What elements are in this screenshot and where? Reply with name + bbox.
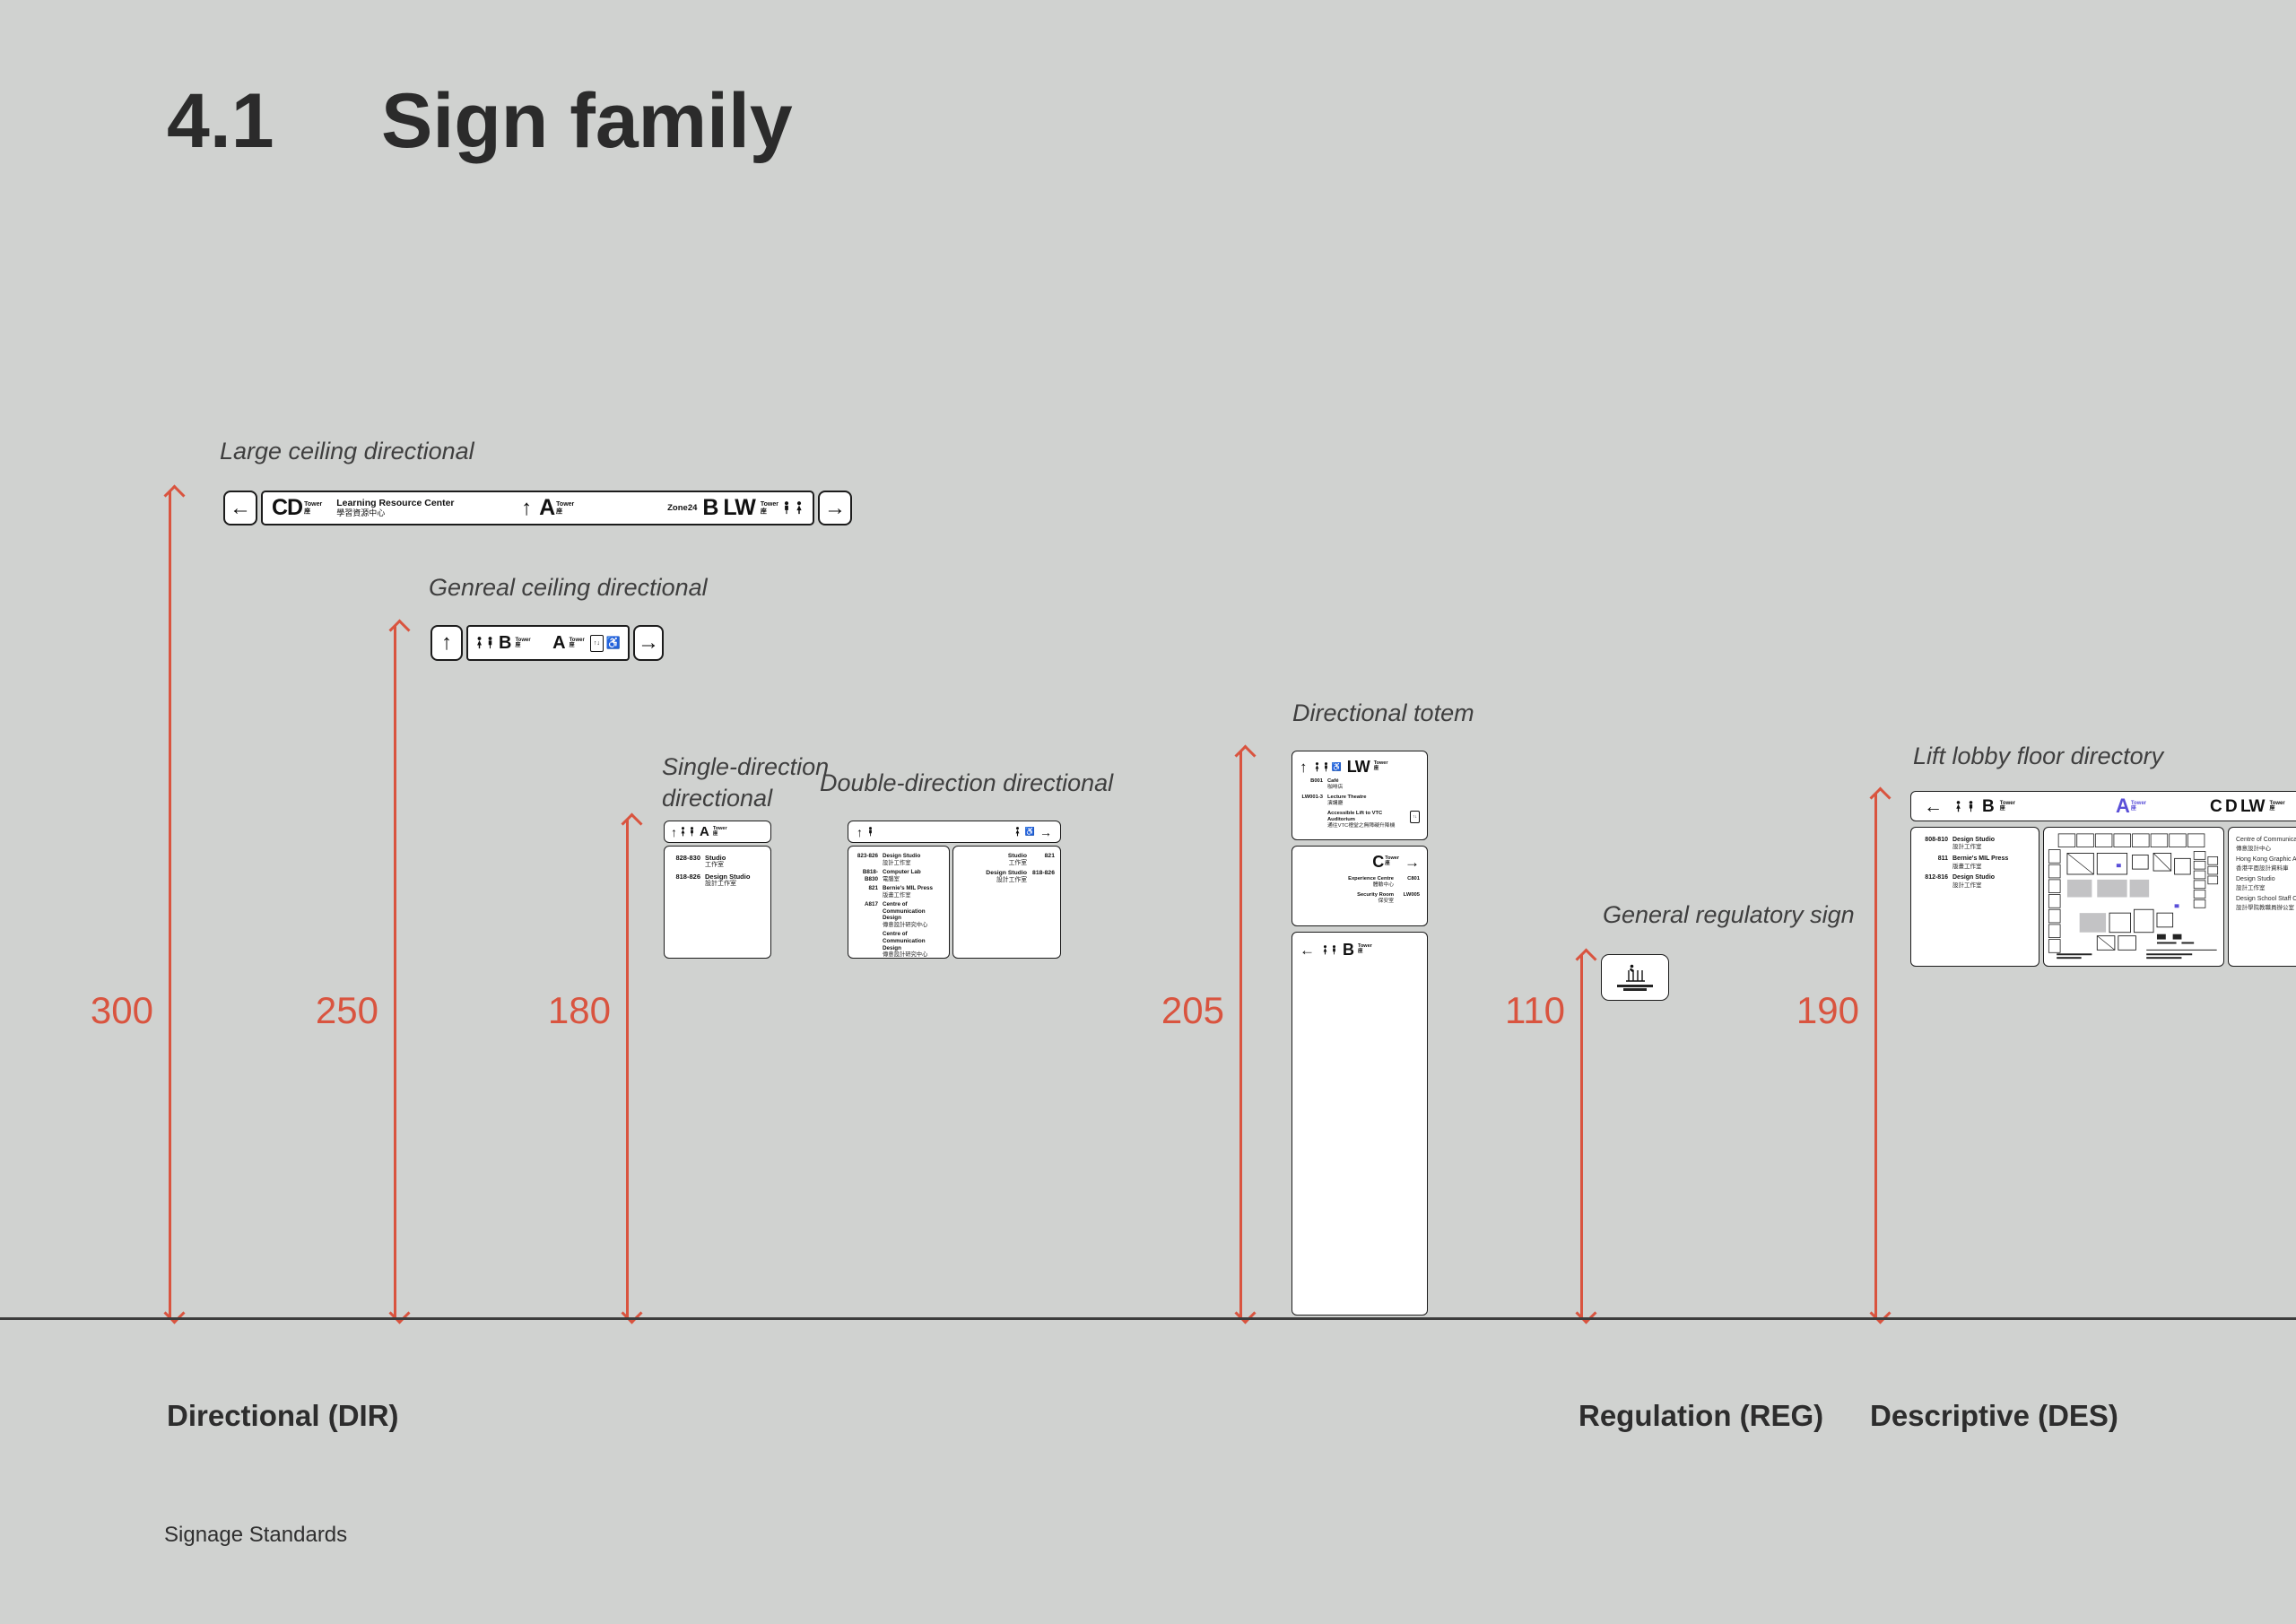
room-name: Hong Kong Graphic Archive香港平面設計資料庫: [2236, 856, 2296, 872]
label-general-regulatory-sign: General regulatory sign: [1603, 899, 1855, 931]
male-icon: [689, 827, 695, 837]
room-number: 828-830: [670, 854, 700, 869]
dimension-value-110: 110: [1457, 992, 1565, 1029]
room-number: 821: [1031, 853, 1055, 867]
room-name-zh: 傳意設計研究中心: [883, 922, 944, 929]
room-number: [853, 931, 878, 958]
male-icon: [867, 827, 874, 837]
directory-right-panel: Centre of Communication Design傳意設計中心 Hon…: [2228, 827, 2296, 967]
room-number: 818-826: [1031, 870, 1055, 884]
room-name: Design Studio設計工作室: [2236, 876, 2275, 891]
directory-header: ← B Tower 座 A Tower 座 C D LW Tower 座: [1910, 791, 2296, 821]
dimension-value-205: 205: [1117, 992, 1224, 1029]
room-number: B001: [1300, 778, 1323, 791]
room-name: Design Studio 設計工作室: [705, 873, 750, 888]
tower-caption: Tower 座: [304, 501, 322, 515]
general-ceiling-main-panel: B Tower 座 A Tower 座 ↑↓ ♿: [466, 625, 630, 661]
room-name: Security Room保安室: [1357, 892, 1394, 905]
dimension-line-205: [1239, 751, 1242, 1318]
room-name: Design Studio設計工作室: [1952, 874, 1995, 889]
double-direction-left-body: 823-826 Design Studio設計工作室 B818-B830 Com…: [848, 846, 950, 959]
room-name-zh: 傳意設計中心: [2236, 843, 2296, 852]
female-icon: [1322, 945, 1328, 955]
room-number: 811: [1918, 855, 1948, 870]
single-direction-body: 828-830 Studio 工作室 818-826 Design Studio…: [664, 846, 771, 959]
lift-icon: ↑↓: [590, 635, 604, 652]
room-name-en: Centre of Communication Design: [2236, 837, 2296, 843]
sign-row: 823-826 Design Studio設計工作室: [853, 853, 920, 866]
room-name: Lecture Theatre演講廳: [1327, 795, 1367, 807]
tower-caption: Tower 座: [515, 638, 530, 649]
room-name-zh: 版畫工作室: [1952, 864, 2008, 871]
room-name-zh: 設計工作室: [705, 881, 750, 888]
b-tower-logo: B: [1982, 798, 1994, 815]
zone-label: Zone24: [667, 503, 697, 513]
sign-row: 821 Bernie's MIL Press版畫工作室: [853, 885, 933, 899]
room-name: Centre of Communication Design傳意設計研究中心: [883, 931, 944, 958]
room-name: Bernie's MIL Press版畫工作室: [1952, 855, 2008, 870]
up-arrow-icon: ↑: [671, 826, 677, 838]
a-tower-logo: A: [700, 825, 709, 838]
room-name-en: Design Studio: [883, 853, 920, 860]
room-name-zh: 工作室: [1008, 860, 1027, 867]
room-name: Computer Lab電腦室: [883, 869, 921, 882]
dimension-line-110: [1580, 954, 1583, 1318]
male-icon: [1967, 801, 1975, 812]
ground-line: [0, 1317, 2296, 1320]
sign-row: Design Studio設計工作室 818-826: [959, 870, 1055, 884]
room-number: A817: [853, 901, 878, 928]
general-ceiling-right-arrow-panel: →: [633, 625, 664, 661]
male-icon: [1331, 945, 1337, 955]
right-arrow-icon: →: [824, 498, 846, 519]
tower-zh: 座: [304, 508, 322, 515]
room-name-en: Security Room: [1357, 892, 1394, 899]
dimension-value-300: 300: [46, 992, 153, 1029]
right-arrow-icon: →: [1405, 855, 1420, 870]
center-group: ↑ A Tower 座: [521, 497, 574, 519]
tower-zh: 座: [2270, 806, 2285, 812]
destination-en: Learning Resource Center: [336, 498, 454, 508]
b-tower-logo: B: [1343, 942, 1353, 958]
up-arrow-icon: ↑: [857, 826, 863, 838]
label-lift-lobby-floor-directory: Lift lobby floor directory: [1913, 741, 2163, 772]
sign-row: Centre of Communication Design傳意設計研究中心: [853, 931, 944, 958]
male-icon: [486, 637, 494, 649]
female-icon: [680, 827, 686, 837]
room-name: Studio工作室: [1008, 853, 1027, 867]
left-arrow-icon: ←: [1300, 942, 1315, 958]
sign-row: B001 Café咖啡店: [1300, 778, 1343, 791]
room-name-zh: 設計工作室: [2236, 882, 2275, 891]
sign-row: 811 Bernie's MIL Press版畫工作室: [1918, 855, 2008, 870]
tower-zh: 座: [1385, 862, 1399, 867]
room-name-en: Design Studio: [1952, 874, 1995, 881]
section-number: 4.1: [167, 83, 274, 160]
room-name: Studio 工作室: [705, 854, 726, 869]
room-name: Design Studio設計工作室: [1952, 837, 1995, 851]
room-number: 818-826: [670, 873, 700, 888]
room-name-en: Design Studio: [2236, 876, 2275, 882]
sign-row: Studio工作室 821: [959, 853, 1055, 867]
category-descriptive: Descriptive (DES): [1870, 1399, 2118, 1433]
room-number: [1300, 811, 1323, 829]
label-large-ceiling-directional: Large ceiling directional: [220, 436, 474, 467]
blw-tower-logo: B LW: [702, 497, 755, 519]
totem-middle-header: C Tower 座 →: [1372, 854, 1420, 870]
room-number: 821: [853, 885, 878, 899]
room-name-en: Bernie's MIL Press: [1952, 855, 2008, 863]
room-number: 812-816: [1918, 874, 1948, 889]
dimension-value-250: 250: [271, 992, 378, 1029]
sign-row: 808-810 Design Studio設計工作室: [1918, 837, 1995, 851]
a-tower-logo: A: [2116, 796, 2129, 816]
room-name-en: Café: [1327, 778, 1343, 785]
label-double-direction-directional: Double-direction directional: [820, 768, 1113, 799]
sign-row: A817 Centre of Communication Design傳意設計研…: [853, 901, 944, 928]
up-arrow-icon: ↑: [441, 632, 452, 654]
lift-arrows: ↑↓: [1413, 814, 1417, 820]
sign-row: 812-816 Design Studio設計工作室: [1918, 874, 1995, 889]
room-name: Design Studio設計工作室: [986, 870, 1027, 884]
room-name-zh: 設計工作室: [1952, 844, 1995, 851]
tower-zh: 座: [713, 832, 727, 838]
right-group: Zone24 B LW Tower 座: [667, 497, 804, 519]
sign-row: B818-B830 Computer Lab電腦室: [853, 869, 921, 882]
room-name-zh: 咖啡店: [1327, 785, 1343, 791]
room-name-zh: 演講廳: [1327, 801, 1367, 807]
tower-caption: Tower 座: [761, 501, 778, 515]
general-ceiling-up-arrow-panel: ↑: [430, 625, 463, 661]
cd-tower-logo: CD: [272, 497, 302, 519]
room-name: Design Studio設計工作室: [883, 853, 920, 866]
room-name-zh: 設計工作室: [986, 877, 1027, 884]
female-icon: [795, 501, 804, 515]
cdlw-tower-logo: C D LW: [2210, 798, 2265, 815]
room-number: 823-826: [853, 853, 878, 866]
no-climbing-icon: [1624, 964, 1646, 982]
floor-plan-map: [2044, 829, 2222, 966]
totem-top-header: ↑ ♿ LW Tower 座: [1300, 759, 1388, 775]
totem-bottom-panel: ← B Tower 座: [1291, 932, 1428, 1316]
right-arrow-icon: →: [1039, 826, 1052, 838]
room-name-en: Experience Centre: [1348, 876, 1394, 882]
right-arrow-icon: →: [638, 632, 659, 654]
tower-caption: Tower 座: [2131, 801, 2146, 812]
up-arrow-icon: ↑: [1300, 760, 1308, 775]
tower-zh: 座: [556, 508, 574, 515]
room-name: Centre of Communication Design傳意設計中心: [2236, 837, 2296, 852]
double-direction-right-body: Studio工作室 821 Design Studio設計工作室 818-826: [952, 846, 1061, 959]
female-icon: [475, 637, 483, 649]
large-ceiling-right-arrow-panel: →: [818, 491, 852, 525]
lw-tower-logo: LW: [1347, 759, 1370, 775]
category-regulation: Regulation (REG): [1578, 1399, 1823, 1433]
tower-caption: Tower 座: [556, 501, 574, 515]
room-name-zh: 傳意設計研究中心: [883, 951, 944, 959]
dimension-value-190: 190: [1752, 992, 1859, 1029]
sign-row: Experience Centre體驗中心 C801: [1300, 876, 1420, 889]
room-name-zh: 版畫工作室: [883, 892, 933, 899]
illegible-caption-bars: [1617, 985, 1653, 991]
tower-caption: Tower 座: [570, 638, 585, 649]
lift-arrows: ↑↓: [594, 640, 600, 647]
room-name: Design School Staff Office設計學院教職員辦公室: [2236, 896, 2296, 911]
a-tower-logo: A: [552, 634, 564, 652]
destination-zh: 學習資源中心: [336, 508, 454, 517]
tower-caption: Tower 座: [1385, 856, 1399, 867]
tower-zh: 座: [570, 643, 585, 648]
totem-top-panel: ↑ ♿ LW Tower 座 B001 Café咖啡店 LW001-3 Lect…: [1291, 751, 1428, 840]
c-tower-logo: C: [1372, 854, 1383, 870]
room-name-en: Studio: [705, 854, 726, 862]
directory-map-panel: [2043, 827, 2224, 967]
room-name-en: Bernie's MIL Press: [883, 885, 933, 892]
room-name: Café咖啡店: [1327, 778, 1343, 791]
room-name-zh: 設計工作室: [1952, 882, 1995, 890]
a-tower-logo: A: [539, 497, 554, 519]
dimension-line-300: [169, 491, 171, 1318]
cdlw-group: C D LW Tower 座: [2210, 798, 2296, 815]
room-number: LW005: [1398, 892, 1420, 905]
a-tower-group: A Tower 座: [2116, 796, 2146, 816]
room-name-en: Accessible Lift to VTC Auditorium: [1327, 811, 1405, 823]
female-icon: [1954, 801, 1962, 812]
dimension-line-250: [394, 625, 396, 1318]
tower-caption: Tower 座: [1358, 944, 1372, 955]
destination-text: Learning Resource Center 學習資源中心: [336, 498, 454, 517]
room-name: Accessible Lift to VTC Auditorium通往VTC禮堂…: [1327, 811, 1405, 829]
large-ceiling-left-arrow-panel: ←: [223, 491, 257, 525]
male-icon: [782, 501, 791, 515]
tower-caption: Tower 座: [1374, 761, 1388, 772]
room-name-zh: 保安室: [1357, 899, 1394, 905]
sign-row: LW001-3 Lecture Theatre演講廳: [1300, 795, 1367, 807]
lift-icon: ↑↓: [1410, 811, 1420, 823]
room-name-en: Design School Staff Office: [2236, 896, 2296, 902]
totem-bottom-header: ← B Tower 座: [1300, 942, 1372, 958]
single-direction-header: ↑ A Tower 座: [664, 821, 771, 843]
wheelchair-icon: ♿: [1025, 827, 1035, 837]
room-name-en: Studio: [1008, 853, 1027, 860]
category-directional: Directional (DIR): [167, 1399, 399, 1433]
directory-left-panel: 808-810 Design Studio設計工作室 811 Bernie's …: [1910, 827, 2039, 967]
dimension-line-190: [1874, 793, 1877, 1318]
room-name-en: Lecture Theatre: [1327, 795, 1367, 801]
tower-zh: 座: [1374, 767, 1388, 772]
sign-row: Security Room保安室 LW005: [1300, 892, 1420, 905]
tower-zh: 座: [761, 508, 778, 515]
room-name-zh: 工作室: [705, 862, 726, 869]
left-arrow-icon: ←: [1924, 797, 1943, 816]
room-name-zh: 通往VTC禮堂之無障礙升降機: [1327, 823, 1405, 829]
dimension-line-180: [626, 819, 629, 1318]
room-number: B818-B830: [853, 869, 878, 882]
room-name: Centre of Communication Design傳意設計研究中心: [883, 901, 944, 928]
page-title: Sign family: [381, 83, 793, 160]
tower-zh: 座: [1358, 950, 1372, 955]
tower-zh: 座: [2000, 806, 2015, 812]
room-name-zh: 體驗中心: [1348, 882, 1394, 889]
sign-row: Accessible Lift to VTC Auditorium通往VTC禮堂…: [1300, 811, 1420, 829]
tower-caption: Tower 座: [2270, 801, 2285, 812]
room-name-en: Centre of Communication Design: [883, 901, 944, 922]
room-name-en: Hong Kong Graphic Archive: [2236, 856, 2296, 863]
left-arrow-icon: ←: [230, 498, 251, 519]
room-name-en: Centre of Communication Design: [883, 931, 944, 951]
up-arrow-icon: ↑: [521, 498, 532, 519]
room-name-en: Computer Lab: [883, 869, 921, 876]
label-directional-totem: Directional totem: [1292, 698, 1474, 729]
wheelchair-icon: ♿: [606, 636, 621, 650]
footer-text: Signage Standards: [164, 1523, 347, 1548]
tower-en: Tower: [761, 501, 778, 508]
regulatory-sign: [1601, 954, 1669, 1001]
room-name-zh: 設計工作室: [883, 860, 920, 867]
wheelchair-icon: ♿: [1332, 762, 1342, 772]
room-number: C801: [1398, 876, 1420, 889]
tower-caption: Tower 座: [713, 827, 727, 838]
large-ceiling-main-panel: CD Tower 座 Learning Resource Center 學習資源…: [261, 491, 814, 525]
double-direction-header: ↑ ♿ →: [848, 821, 1061, 843]
tower-en: Tower: [304, 501, 322, 508]
room-name-zh: 香港平面設計資料庫: [2236, 863, 2296, 872]
label-general-ceiling-directional: Genreal ceiling directional: [429, 572, 708, 604]
tower-zh: 座: [515, 643, 530, 648]
room-name-zh: 電腦室: [883, 876, 921, 883]
dimension-value-180: 180: [503, 992, 611, 1029]
room-number: LW001-3: [1300, 795, 1323, 807]
sign-row: 818-826 Design Studio 設計工作室: [670, 873, 750, 888]
room-number: 808-810: [1918, 837, 1948, 851]
female-icon: [1314, 762, 1320, 772]
b-tower-logo: B: [499, 634, 510, 652]
sign-row: 828-830 Studio 工作室: [670, 854, 726, 869]
female-icon: [1014, 827, 1021, 837]
tower-caption: Tower 座: [2000, 801, 2015, 812]
room-name: Bernie's MIL Press版畫工作室: [883, 885, 933, 899]
totem-middle-panel: C Tower 座 → Experience Centre體驗中心 C801 S…: [1291, 846, 1428, 926]
male-icon: [1323, 762, 1329, 772]
tower-zh: 座: [2131, 806, 2146, 812]
room-name: Experience Centre體驗中心: [1348, 876, 1394, 889]
tower-en: Tower: [556, 501, 574, 508]
signage-standards-page: 4.1 Sign family Large ceiling directiona…: [0, 0, 2296, 1624]
room-name-zh: 設計學院教職員辦公室: [2236, 902, 2296, 911]
